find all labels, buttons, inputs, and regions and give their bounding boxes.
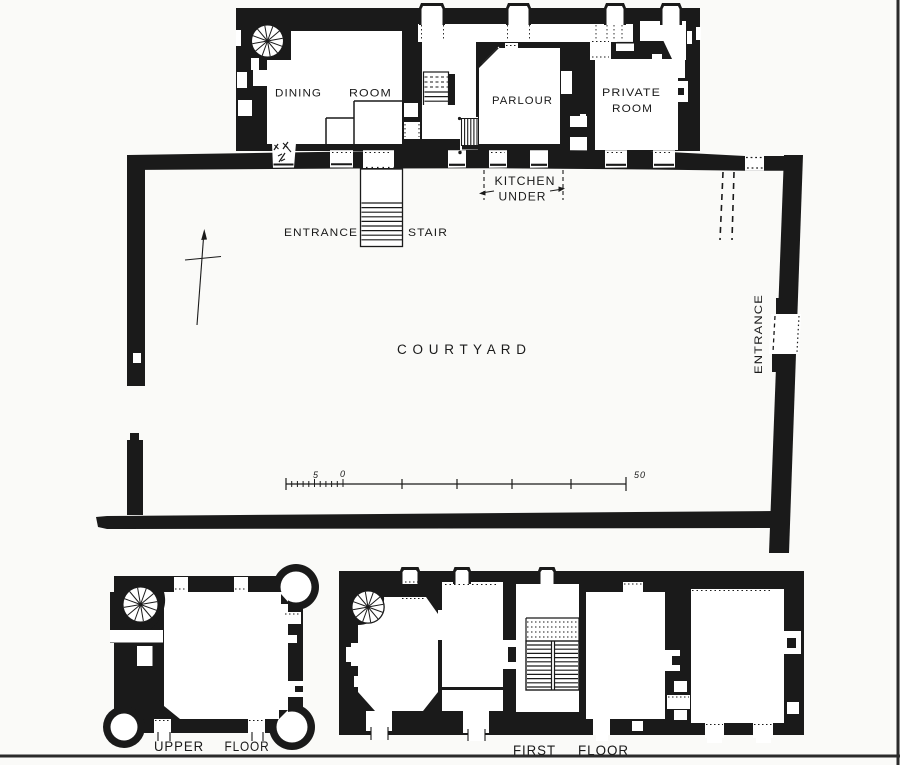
svg-text:STAIR: STAIR — [408, 227, 448, 239]
svg-text:FLOOR: FLOOR — [225, 738, 270, 754]
svg-text:ENTRANCE: ENTRANCE — [753, 294, 765, 374]
svg-text:5: 5 — [313, 470, 319, 480]
svg-text:ROOM: ROOM — [349, 88, 392, 100]
svg-text:PARLOUR: PARLOUR — [492, 95, 553, 107]
svg-text:C O U R T Y A R D: C O U R T Y A R D — [397, 342, 527, 357]
svg-text:KITCHEN: KITCHEN — [495, 174, 556, 188]
svg-text:PRIVATE: PRIVATE — [602, 87, 661, 99]
svg-text:50: 50 — [634, 470, 646, 480]
svg-text:0: 0 — [340, 469, 346, 479]
svg-text:UPPER: UPPER — [154, 738, 204, 754]
svg-text:ENTRANCE: ENTRANCE — [284, 227, 358, 239]
svg-text:ROOM: ROOM — [612, 103, 653, 115]
svg-text:DINING: DINING — [275, 88, 322, 100]
svg-text:UNDER: UNDER — [499, 192, 547, 204]
